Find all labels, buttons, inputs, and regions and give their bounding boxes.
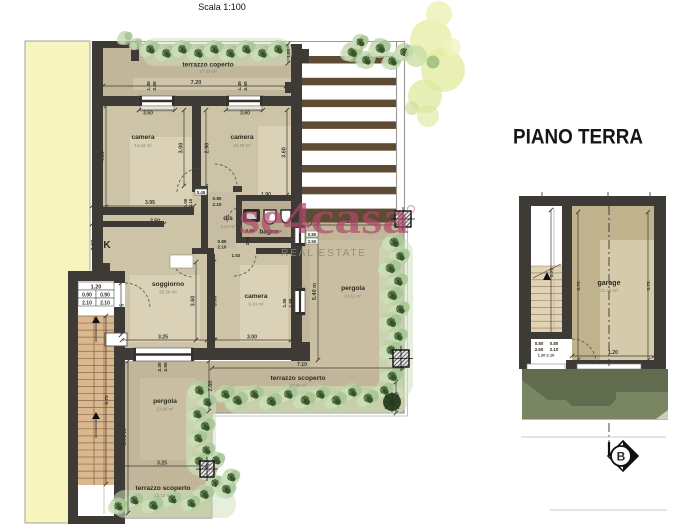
svg-text:5.75 m: 5.75 m xyxy=(122,428,128,445)
svg-text:1.50: 1.50 xyxy=(288,298,293,307)
svg-text:2.10: 2.10 xyxy=(100,301,110,307)
svg-text:pergola: pergola xyxy=(341,285,365,292)
svg-text:17.27 m²: 17.27 m² xyxy=(199,69,217,74)
svg-text:7.20: 7.20 xyxy=(191,80,202,86)
svg-text:2.10: 2.10 xyxy=(218,245,227,250)
svg-text:15.79 m²: 15.79 m² xyxy=(233,143,251,148)
svg-text:3.60: 3.60 xyxy=(191,296,197,307)
svg-text:3.60: 3.60 xyxy=(282,147,288,158)
svg-text:3.00: 3.00 xyxy=(247,335,257,341)
svg-text:1.35: 1.35 xyxy=(282,298,287,307)
svg-text:3.25: 3.25 xyxy=(157,461,167,467)
svg-text:2.50: 2.50 xyxy=(243,81,249,91)
svg-text:8.75: 8.75 xyxy=(104,395,110,405)
svg-text:se4casa: se4casa xyxy=(239,192,409,243)
svg-text:3.50: 3.50 xyxy=(143,111,153,117)
svg-text:21.40 m²: 21.40 m² xyxy=(600,288,618,293)
svg-text:camera: camera xyxy=(230,134,253,141)
svg-text:5.40 m: 5.40 m xyxy=(312,283,318,300)
svg-text:3.25: 3.25 xyxy=(158,335,168,341)
svg-text:1.05: 1.05 xyxy=(286,49,291,58)
svg-text:5.75: 5.75 xyxy=(549,268,555,278)
svg-text:B: B xyxy=(617,450,626,464)
svg-text:0.45: 0.45 xyxy=(197,190,206,195)
svg-text:13.86 m²: 13.86 m² xyxy=(156,407,174,412)
svg-text:2.10: 2.10 xyxy=(550,347,559,352)
svg-text:3.00: 3.00 xyxy=(179,143,185,154)
svg-text:3.95: 3.95 xyxy=(145,200,155,206)
svg-text:3.60: 3.60 xyxy=(240,111,250,117)
svg-text:0.90: 0.90 xyxy=(100,293,110,299)
svg-text:3.00: 3.00 xyxy=(213,296,219,307)
svg-text:1.40: 1.40 xyxy=(146,81,152,91)
svg-text:2.60: 2.60 xyxy=(535,347,544,352)
svg-text:camera: camera xyxy=(131,134,154,141)
svg-text:14.11 m²: 14.11 m² xyxy=(344,294,362,299)
svg-text:2.30: 2.30 xyxy=(157,362,163,372)
svg-text:17.93 m²: 17.93 m² xyxy=(289,383,307,388)
svg-text:4.00: 4.00 xyxy=(100,151,106,162)
svg-text:2.50: 2.50 xyxy=(152,81,158,91)
svg-text:14.44 m²: 14.44 m² xyxy=(134,143,152,148)
svg-text:0.80: 0.80 xyxy=(550,341,559,346)
svg-text:PIANO TERRA: PIANO TERRA xyxy=(513,126,643,149)
svg-text:13.12 m²: 13.12 m² xyxy=(154,493,172,498)
svg-text:3.44 m²: 3.44 m² xyxy=(220,224,236,229)
svg-text:2.10: 2.10 xyxy=(82,301,92,307)
svg-text:5.75: 5.75 xyxy=(646,281,652,291)
svg-text:1.20: 1.20 xyxy=(91,285,102,291)
svg-text:25.39 m²: 25.39 m² xyxy=(159,290,177,295)
svg-text:0.80: 0.80 xyxy=(213,196,222,201)
svg-text:0.80: 0.80 xyxy=(535,341,544,346)
svg-text:0.80: 0.80 xyxy=(218,239,227,244)
svg-text:5.75: 5.75 xyxy=(576,281,582,291)
svg-text:terrazzo scoperto: terrazzo scoperto xyxy=(136,485,191,492)
svg-text:7.10: 7.10 xyxy=(297,362,307,368)
svg-text:1.20 2.10: 1.20 2.10 xyxy=(538,353,555,358)
svg-text:terrazzo scoperto: terrazzo scoperto xyxy=(271,375,326,382)
svg-text:9.14 m²: 9.14 m² xyxy=(248,302,264,307)
svg-text:2.90: 2.90 xyxy=(205,143,211,154)
svg-text:2.00: 2.00 xyxy=(91,240,97,251)
svg-text:garage: garage xyxy=(598,280,621,287)
svg-text:3.50: 3.50 xyxy=(150,219,160,225)
svg-text:soggiorno: soggiorno xyxy=(152,281,184,288)
svg-text:2.65: 2.65 xyxy=(120,304,126,315)
svg-text:2.00: 2.00 xyxy=(208,381,214,392)
svg-text:camera: camera xyxy=(244,293,267,300)
svg-text:2.10: 2.10 xyxy=(188,198,193,207)
svg-text:1.40: 1.40 xyxy=(237,81,243,91)
svg-text:REAL ESTATE: REAL ESTATE xyxy=(281,248,367,259)
svg-text:2.10: 2.10 xyxy=(213,202,222,207)
svg-text:1.02: 1.02 xyxy=(232,253,241,258)
svg-text:K: K xyxy=(103,240,111,251)
svg-text:terrazzo coperto: terrazzo coperto xyxy=(182,62,233,69)
svg-text:pergola: pergola xyxy=(153,398,177,405)
svg-text:dis: dis xyxy=(223,215,233,222)
svg-text:1.20: 1.20 xyxy=(608,350,618,356)
svg-text:1.60: 1.60 xyxy=(395,392,401,403)
svg-text:Scala 1:100: Scala 1:100 xyxy=(198,2,246,12)
svg-text:0.90: 0.90 xyxy=(82,293,92,299)
svg-text:2.50: 2.50 xyxy=(163,362,169,372)
